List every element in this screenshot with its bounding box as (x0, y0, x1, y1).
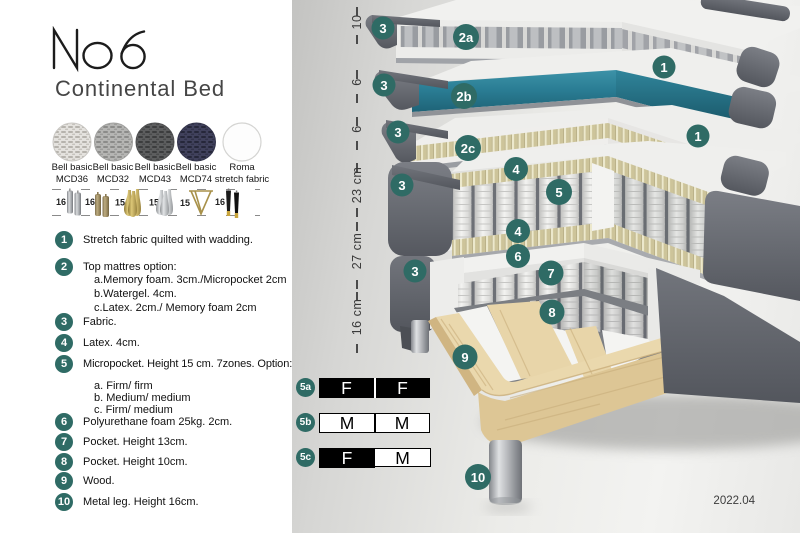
svg-text:4: 4 (512, 162, 520, 177)
svg-text:2a: 2a (459, 30, 474, 45)
svg-text:8: 8 (548, 305, 555, 320)
svg-text:3: 3 (380, 78, 387, 93)
svg-text:4: 4 (514, 224, 522, 239)
svg-text:1: 1 (660, 60, 667, 75)
svg-text:6: 6 (514, 249, 521, 264)
svg-text:5: 5 (555, 185, 562, 200)
svg-text:3: 3 (379, 21, 386, 36)
svg-text:3: 3 (398, 178, 405, 193)
svg-text:2b: 2b (456, 89, 471, 104)
svg-text:10: 10 (471, 470, 485, 485)
svg-text:2c: 2c (461, 141, 475, 156)
svg-text:1: 1 (694, 129, 701, 144)
svg-text:3: 3 (411, 264, 418, 279)
svg-text:3: 3 (394, 125, 401, 140)
svg-text:9: 9 (461, 350, 468, 365)
svg-text:7: 7 (547, 266, 554, 281)
